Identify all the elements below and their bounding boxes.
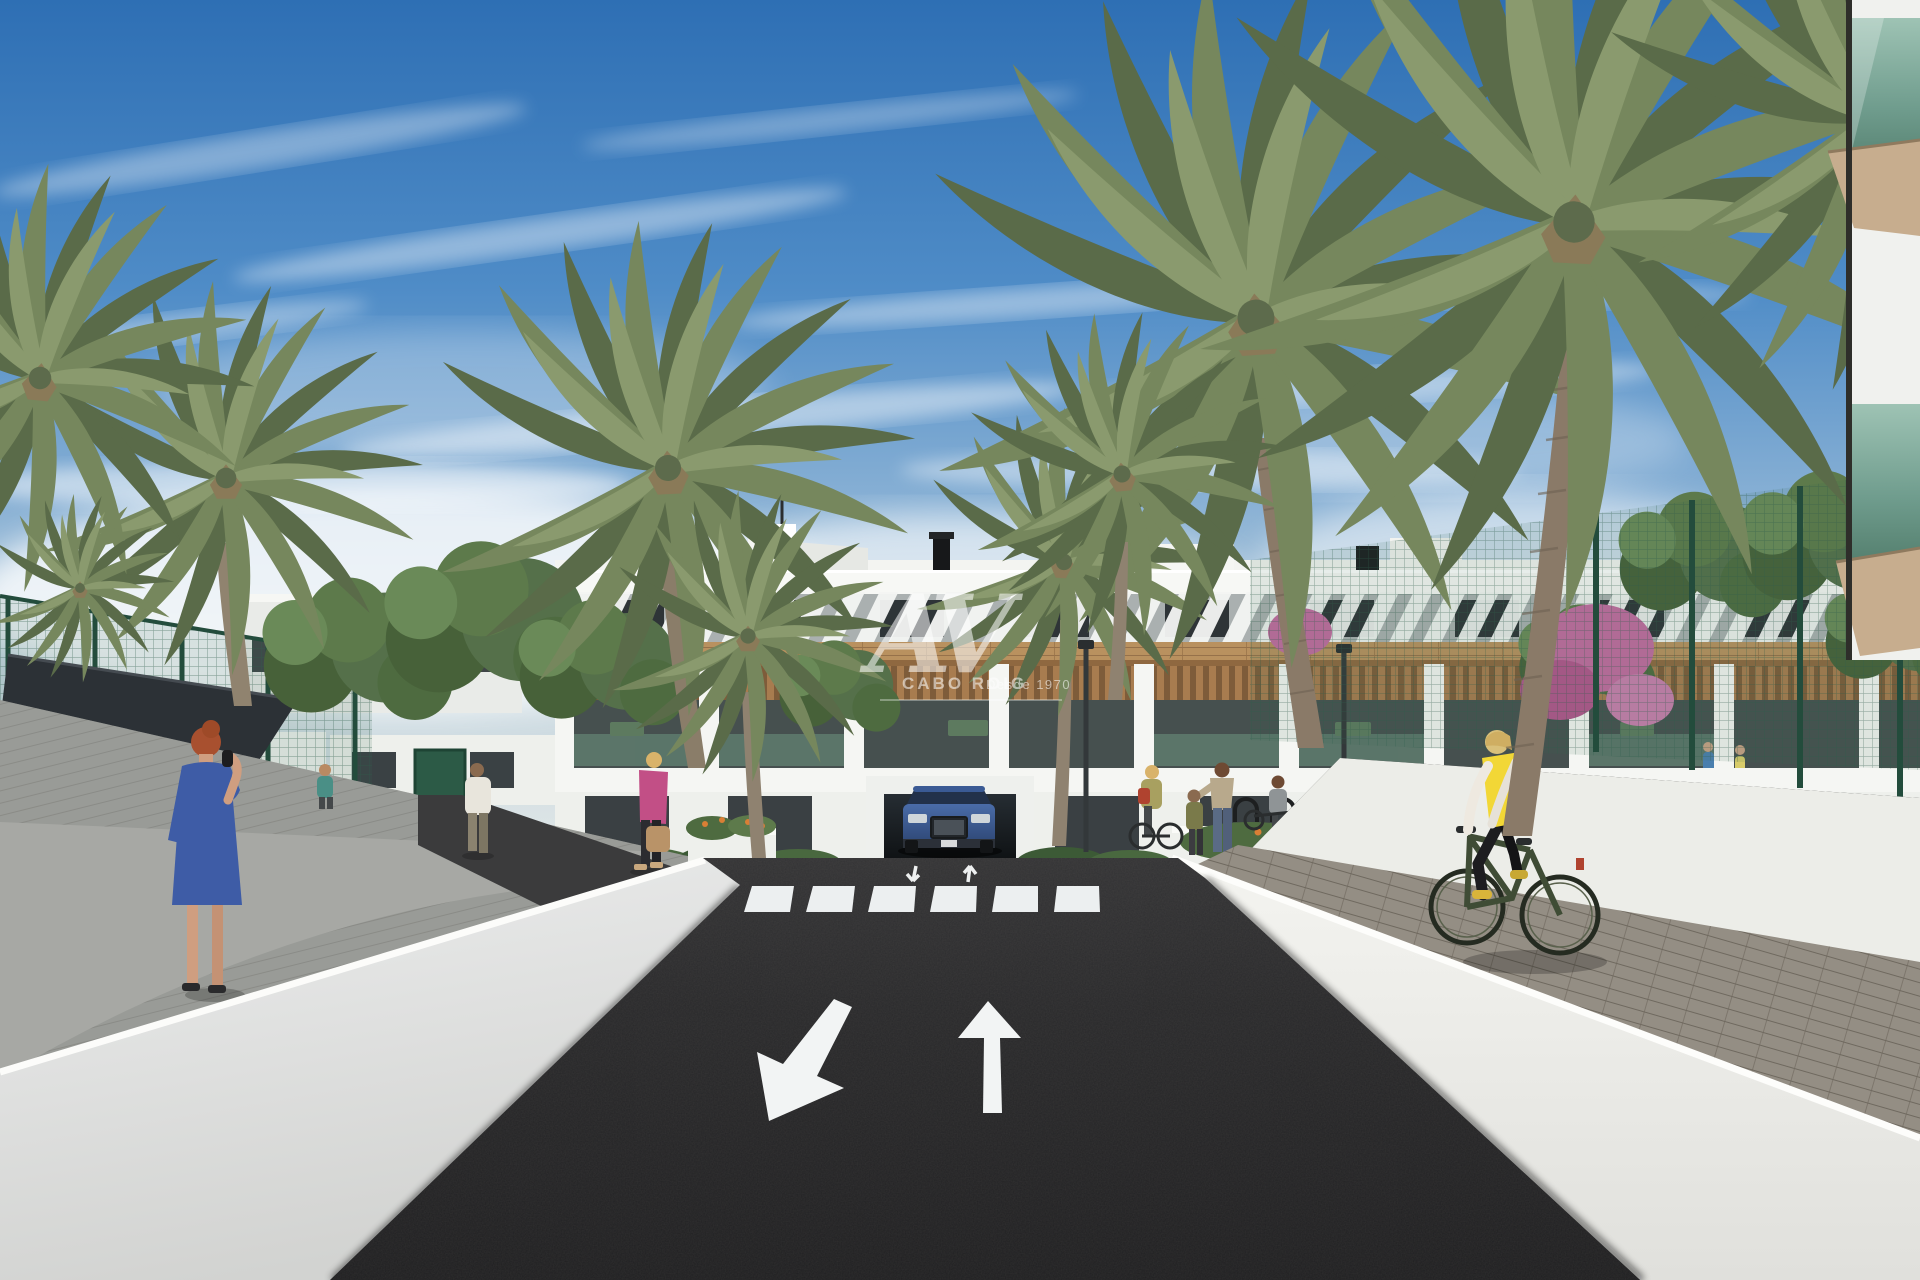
- garage-entrance: [866, 776, 1034, 866]
- car: [898, 786, 1002, 858]
- balcony-glass-lower: [1852, 404, 1920, 562]
- rear-reflector: [1576, 858, 1584, 870]
- render-canvas: AV CABO ROIG Desde 1970: [0, 0, 1920, 1280]
- pedestrian-distant-teal: [317, 764, 333, 809]
- phone: [222, 750, 233, 767]
- handbag: [646, 826, 670, 852]
- brand-tagline: Desde 1970: [986, 677, 1071, 692]
- scene-illustration: AV CABO ROIG Desde 1970: [0, 0, 1920, 1280]
